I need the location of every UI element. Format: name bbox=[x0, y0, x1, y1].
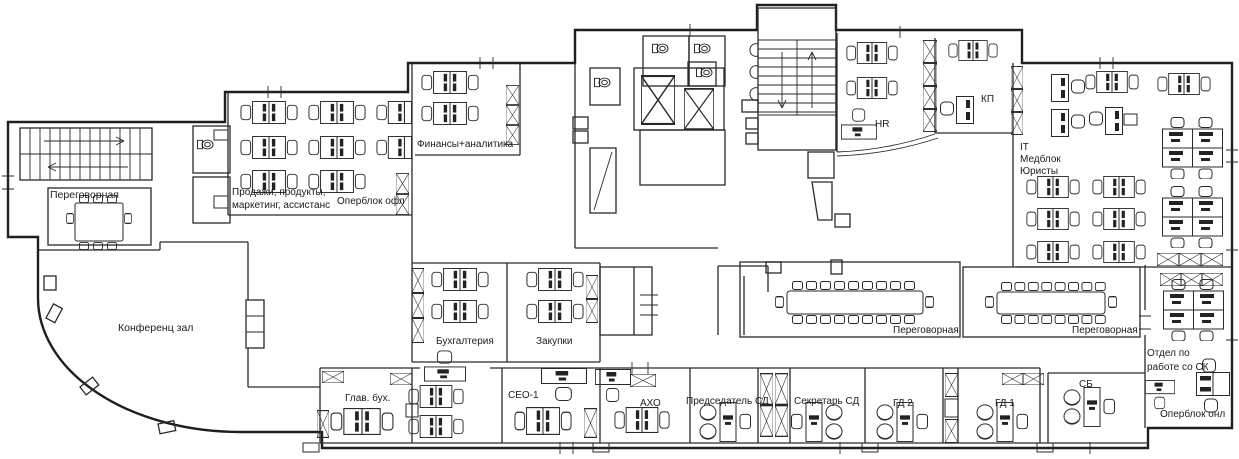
double-desk bbox=[241, 136, 297, 158]
room-label-chairman: Председатель СД bbox=[686, 396, 769, 407]
meeting-chair bbox=[793, 282, 803, 290]
machine-room bbox=[640, 130, 725, 185]
meeting-chair bbox=[1082, 316, 1092, 324]
meeting-chair bbox=[1028, 316, 1038, 324]
room-label-sk-line2: работе со СК bbox=[1147, 361, 1209, 373]
double-desk bbox=[615, 408, 669, 433]
double-desk bbox=[847, 77, 897, 98]
office-floor-plan: Переговорная Конференц зал Продажи, прод… bbox=[0, 0, 1239, 459]
meeting-chair bbox=[835, 316, 845, 324]
meeting-chair bbox=[1042, 283, 1052, 291]
room-label-sales-line2: маркетинг, ассистанс bbox=[232, 200, 330, 211]
fixture-box bbox=[303, 443, 319, 452]
room-label-hr: HR bbox=[875, 119, 889, 130]
meeting-chair bbox=[807, 316, 817, 324]
wall-desk bbox=[377, 101, 412, 123]
room-label-operblock-offline: Оперблок офл bbox=[337, 195, 405, 207]
meeting-table bbox=[787, 291, 923, 314]
cabinet bbox=[945, 374, 958, 397]
meeting-chair bbox=[66, 214, 73, 224]
meeting-chair bbox=[1095, 283, 1105, 291]
cabinet bbox=[945, 420, 958, 443]
single-desk bbox=[957, 97, 974, 124]
meeting-chair bbox=[79, 242, 88, 249]
meeting-chair bbox=[863, 316, 873, 324]
room-label-operblock-online: Оперблок онл bbox=[1160, 408, 1225, 420]
meeting-chair bbox=[1069, 283, 1079, 291]
room-label-kp: КП bbox=[981, 94, 994, 105]
meeting-chair bbox=[985, 297, 993, 308]
cabinet bbox=[584, 409, 597, 438]
cabinet bbox=[1201, 253, 1222, 265]
room-label-gd2: ГД 2 bbox=[893, 398, 913, 409]
double-desk bbox=[422, 71, 478, 93]
cabinet bbox=[684, 89, 713, 129]
stairs-down-arrow bbox=[778, 52, 786, 108]
double-desk bbox=[1158, 73, 1210, 94]
cabinet bbox=[1002, 373, 1022, 385]
double-desk bbox=[1027, 241, 1079, 262]
room-label-secretary: Секретарь СД bbox=[794, 396, 860, 407]
single-desk bbox=[1106, 108, 1123, 135]
double-desk bbox=[1027, 208, 1079, 229]
double-desk bbox=[847, 42, 897, 63]
double-desk bbox=[527, 300, 583, 322]
floor-plan-canvas: Переговорная Конференц зал Продажи, прод… bbox=[0, 0, 1239, 459]
toilet bbox=[595, 78, 611, 87]
four-desk-pod bbox=[1163, 118, 1223, 180]
cabinet bbox=[412, 269, 424, 293]
chair bbox=[1072, 115, 1085, 128]
toilet bbox=[695, 44, 711, 53]
room-label-gd1: ГД 1 bbox=[995, 398, 1015, 409]
room-label-sales-line1: Продажи, продукты, bbox=[232, 187, 326, 198]
meeting-table bbox=[75, 203, 123, 241]
coat-hooks bbox=[750, 44, 758, 101]
single-desk bbox=[1052, 110, 1069, 137]
cabinet bbox=[1179, 253, 1200, 265]
toilet bbox=[198, 140, 214, 149]
meeting-chair bbox=[849, 282, 859, 290]
room-label-it-line2: Медблок bbox=[1020, 153, 1061, 165]
room-label-aho: АХО bbox=[640, 398, 661, 409]
single-desk bbox=[1052, 75, 1069, 102]
stairwell-center bbox=[758, 8, 836, 150]
meeting-chair bbox=[821, 316, 831, 324]
double-desk bbox=[309, 101, 365, 123]
furniture-layer bbox=[66, 40, 1229, 452]
cabinet bbox=[412, 294, 424, 318]
cabinet bbox=[760, 406, 773, 437]
meeting-chair bbox=[891, 316, 901, 324]
double-desk bbox=[409, 415, 463, 437]
stairwell-west bbox=[20, 128, 152, 180]
meeting-chair bbox=[1002, 316, 1012, 324]
double-desk bbox=[422, 102, 478, 124]
meeting-chair bbox=[1095, 316, 1105, 324]
cabinet bbox=[630, 374, 655, 386]
conference-niche bbox=[246, 300, 264, 348]
executive-desk bbox=[792, 402, 843, 441]
room-label-sk-line1: Отдел по bbox=[1147, 348, 1190, 359]
toilet bbox=[653, 44, 669, 53]
wall-desk bbox=[377, 136, 412, 158]
double-desk bbox=[949, 40, 997, 60]
meeting-chair bbox=[821, 282, 831, 290]
meeting-chair bbox=[793, 316, 803, 324]
meeting-chair bbox=[1055, 316, 1065, 324]
executive-desk bbox=[700, 402, 751, 441]
fixture-box bbox=[1124, 114, 1137, 125]
desk-with-chair bbox=[424, 351, 465, 381]
room-label-accounting: Бухгалтерия bbox=[436, 336, 494, 347]
room-label-conference-hall: Конференц зал bbox=[118, 322, 193, 334]
meeting-chair bbox=[905, 316, 915, 324]
chair bbox=[941, 102, 954, 115]
meeting-chair bbox=[835, 282, 845, 290]
stairs-up-arrow bbox=[808, 52, 816, 108]
meeting-chair bbox=[107, 242, 116, 249]
conference-niche-shelves bbox=[246, 316, 264, 332]
meeting-chair bbox=[1028, 283, 1038, 291]
cabinet bbox=[1023, 373, 1043, 385]
double-desk bbox=[241, 101, 297, 123]
cabinet bbox=[775, 406, 788, 437]
window-mullion bbox=[46, 304, 62, 323]
double-desk bbox=[1027, 176, 1079, 197]
desk-with-chair bbox=[841, 109, 876, 139]
double-desk bbox=[432, 268, 488, 290]
meeting-chair bbox=[1082, 283, 1092, 291]
double-desk bbox=[527, 268, 583, 290]
meeting-chair bbox=[1015, 283, 1025, 291]
toilet bbox=[697, 68, 713, 77]
double-monitor-desk bbox=[1197, 373, 1230, 396]
double-desk bbox=[309, 136, 365, 158]
four-desk-pod bbox=[1164, 280, 1224, 342]
meeting-chair bbox=[849, 316, 859, 324]
room-label-meeting-top-left: Переговорная bbox=[50, 189, 119, 201]
double-desk bbox=[1086, 71, 1138, 92]
stairs-up-arrow bbox=[44, 137, 124, 145]
meeting-chair bbox=[807, 282, 817, 290]
meeting-chair bbox=[863, 282, 873, 290]
chair bbox=[1090, 112, 1103, 125]
interior-walls bbox=[38, 30, 1232, 443]
cabinet bbox=[586, 300, 598, 323]
cabinet bbox=[1181, 273, 1201, 285]
room-label-meeting-right: Переговорная bbox=[1072, 325, 1138, 336]
room-label-it-line3: Юристы bbox=[1020, 166, 1058, 177]
cabinet bbox=[322, 371, 343, 383]
room-label-ceo: СЕО-1 bbox=[508, 390, 539, 401]
meeting-chair bbox=[1055, 283, 1065, 291]
meeting-chair bbox=[877, 282, 887, 290]
curved-corridor-wall bbox=[837, 134, 938, 156]
desk-with-chair bbox=[1145, 380, 1174, 408]
desk-with-chair bbox=[542, 369, 587, 401]
double-desk bbox=[331, 409, 393, 435]
cabinet bbox=[641, 76, 674, 124]
room-label-finance: Финансы+аналитика bbox=[417, 139, 514, 150]
cabinet bbox=[1157, 253, 1178, 265]
meeting-chair bbox=[891, 282, 901, 290]
meeting-chair bbox=[1042, 316, 1052, 324]
room-label-procurement: Закупки bbox=[536, 336, 572, 347]
room-label-it-line1: IT bbox=[1020, 142, 1029, 153]
window-mullion bbox=[158, 421, 176, 434]
desk-with-chair bbox=[595, 370, 630, 402]
meeting-chair bbox=[877, 316, 887, 324]
room-label-meeting-center: Переговорная bbox=[893, 325, 959, 336]
double-desk bbox=[1093, 176, 1145, 197]
executive-desk bbox=[1064, 387, 1115, 426]
meeting-chair bbox=[93, 242, 102, 249]
cabinet bbox=[775, 374, 788, 405]
four-desk-pod bbox=[1163, 187, 1223, 249]
meeting-chair bbox=[775, 297, 783, 308]
meeting-chair bbox=[905, 282, 915, 290]
cabinet bbox=[412, 319, 424, 343]
fixture-box bbox=[945, 399, 958, 417]
meeting-chair bbox=[1015, 316, 1025, 324]
meeting-chair bbox=[1069, 316, 1079, 324]
double-desk bbox=[432, 300, 488, 322]
meeting-chair bbox=[925, 297, 933, 308]
cabinet bbox=[586, 276, 598, 299]
cabinet bbox=[506, 85, 519, 104]
meeting-table bbox=[997, 292, 1105, 314]
chair bbox=[1072, 80, 1085, 93]
double-desk bbox=[515, 408, 571, 435]
double-desk bbox=[1093, 241, 1145, 262]
cabinet bbox=[506, 105, 519, 124]
wall-pillar bbox=[44, 276, 56, 290]
meeting-chair bbox=[1002, 283, 1012, 291]
storage-room bbox=[600, 267, 658, 335]
elevator-core bbox=[573, 36, 850, 227]
room-label-chief-accountant: Глав. бух. bbox=[345, 392, 390, 404]
double-desk bbox=[1093, 208, 1145, 229]
cabinet bbox=[396, 173, 409, 193]
meeting-chair bbox=[1108, 297, 1116, 308]
cabinet bbox=[390, 373, 411, 385]
room-label-sb: СБ bbox=[1079, 379, 1093, 390]
meeting-chair bbox=[124, 214, 131, 224]
